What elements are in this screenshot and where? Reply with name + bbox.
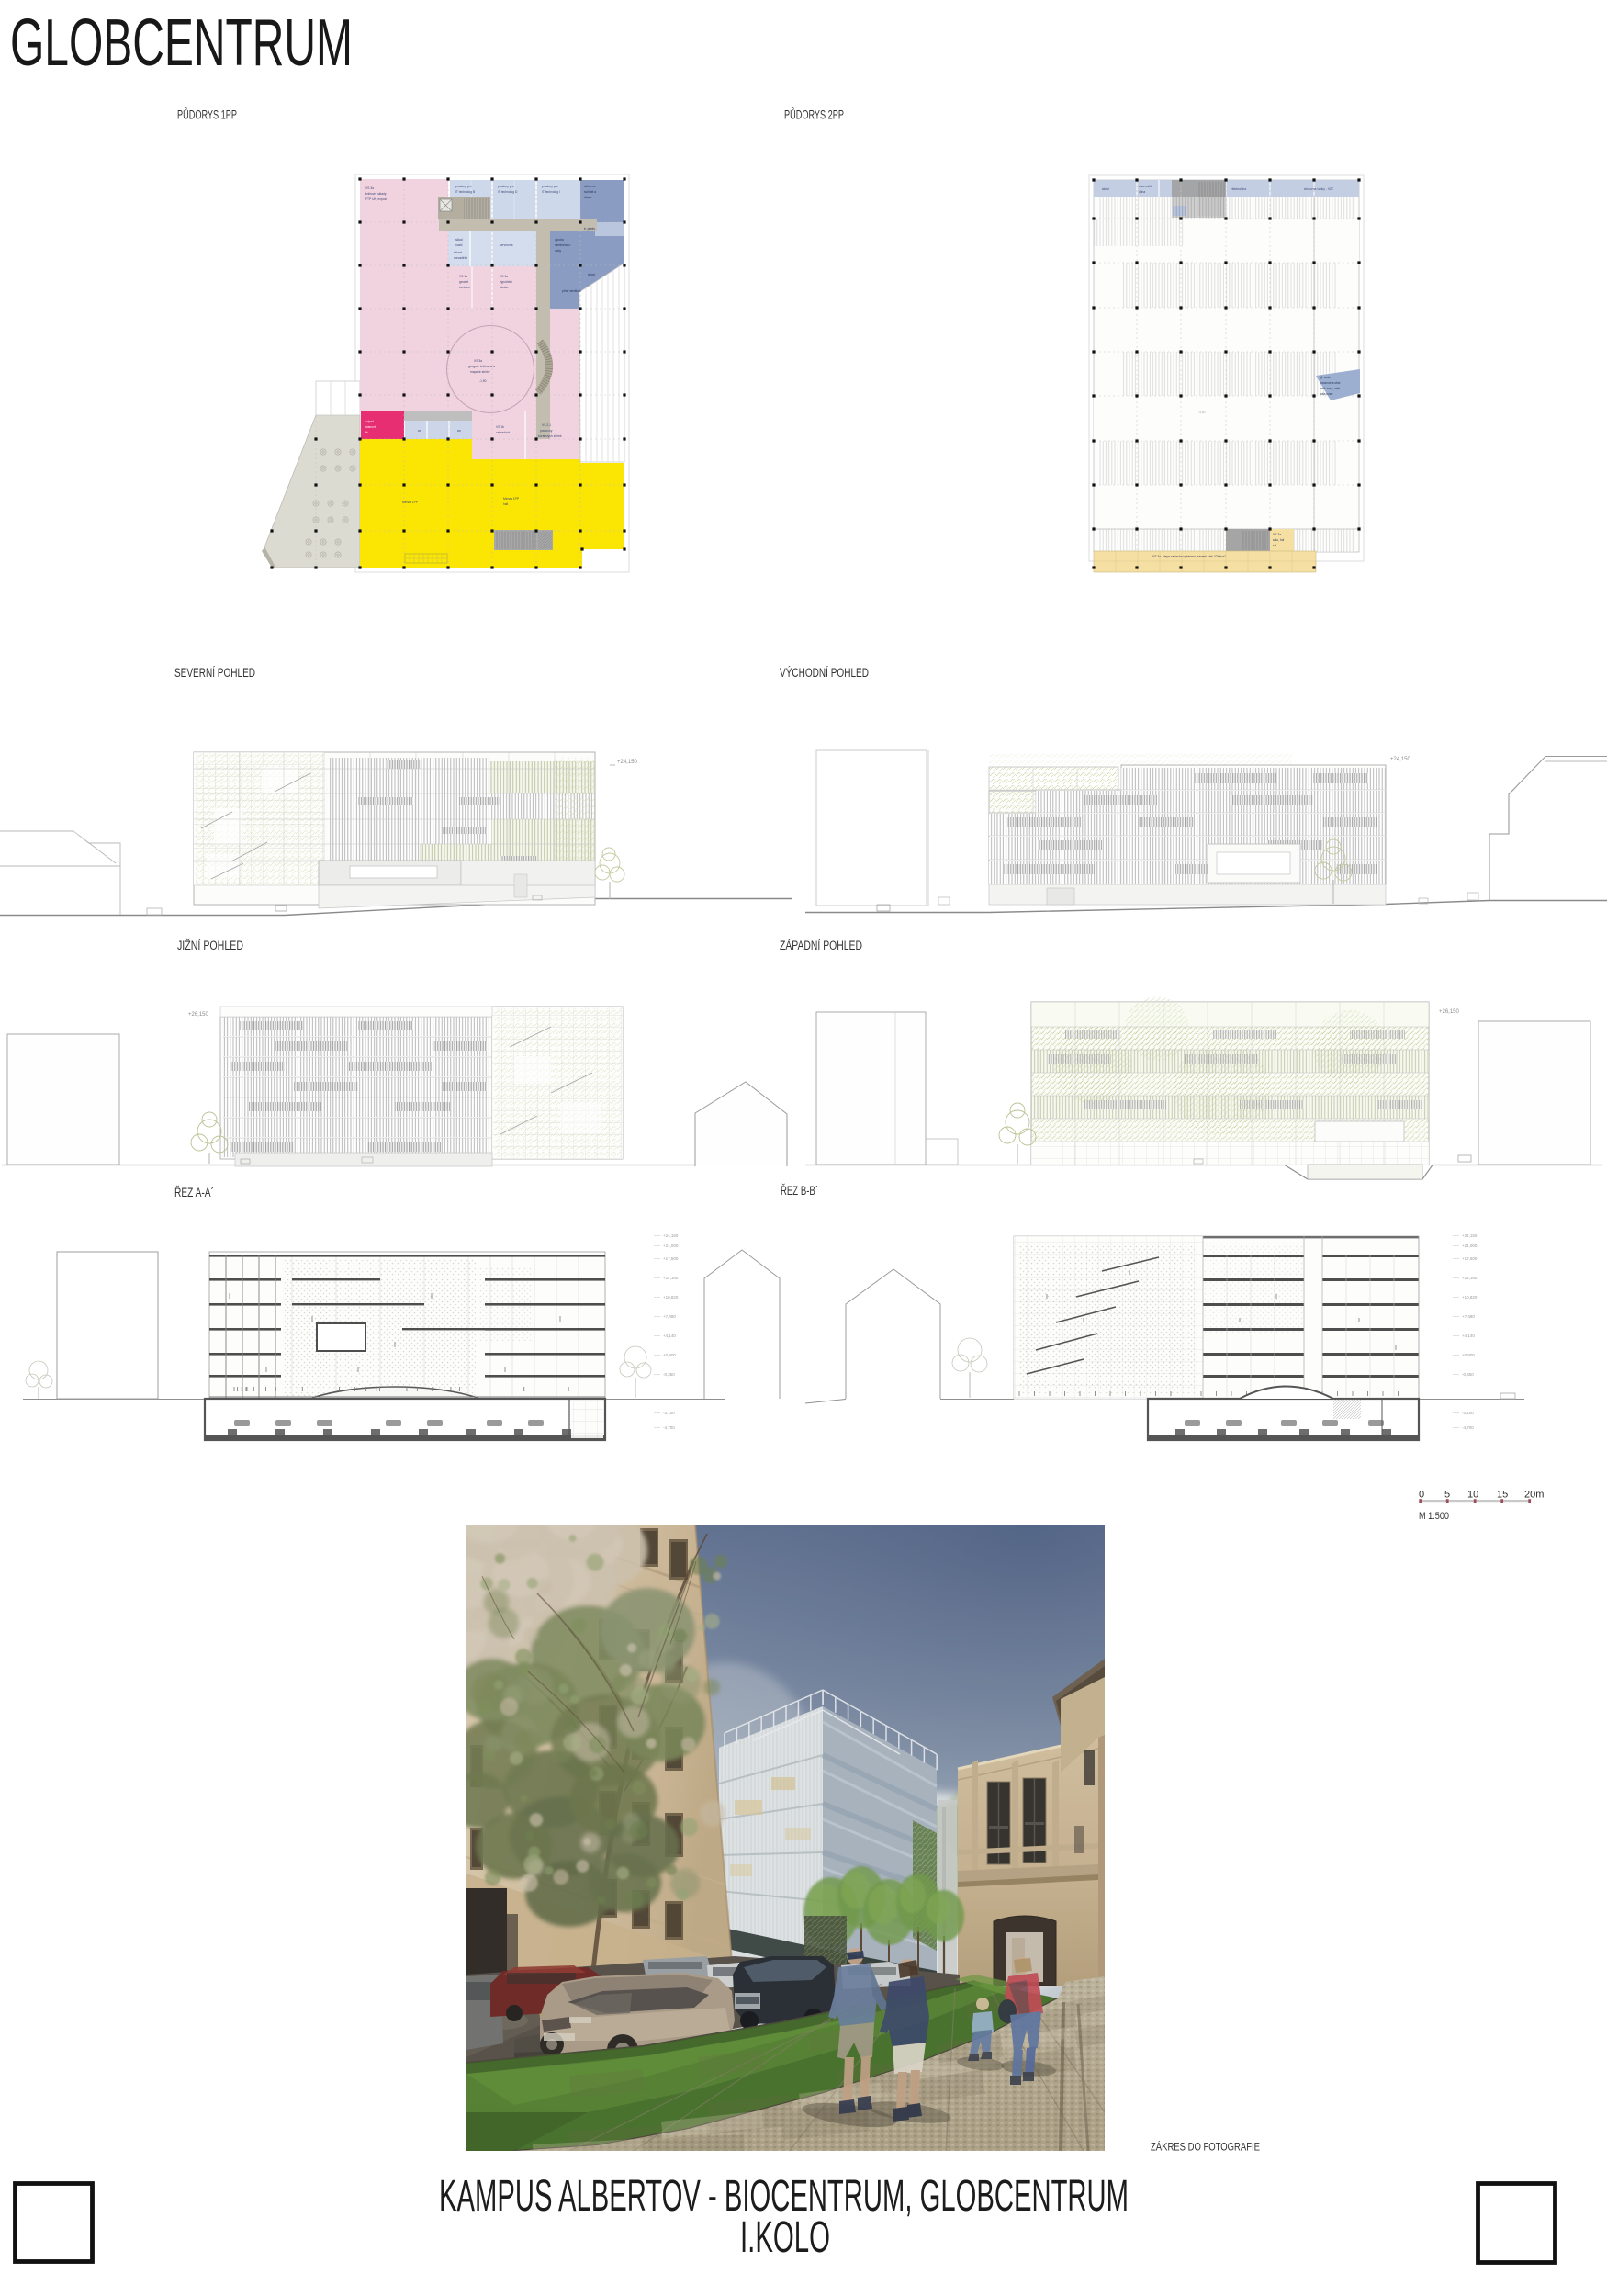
- svg-text:-1,90: -1,90: [479, 379, 487, 383]
- svg-text:ŘEZ B-B´: ŘEZ B-B´: [781, 1184, 818, 1198]
- svg-text:-3,100: -3,100: [1462, 1411, 1474, 1415]
- svg-text:prostory pro: prostory pro: [498, 185, 514, 188]
- svg-text:sál: sál: [1273, 544, 1276, 547]
- svg-text:svítidel a: svítidel a: [584, 190, 596, 194]
- svg-text:+21,000: +21,000: [1462, 1244, 1478, 1248]
- svg-text:+0,800: +0,800: [1462, 1353, 1475, 1357]
- svg-text:+14,160: +14,160: [663, 1276, 679, 1280]
- svg-text:servrovna: servrovna: [500, 243, 513, 247]
- svg-text:+4,140: +4,140: [1462, 1334, 1475, 1338]
- svg-text:M 1:500: M 1:500: [1419, 1511, 1449, 1522]
- svg-text:elektrodílna: elektrodílna: [1231, 187, 1246, 191]
- svg-text:+4,140: +4,140: [663, 1334, 676, 1338]
- svg-text:wc: wc: [418, 429, 421, 433]
- svg-text:+7,480: +7,480: [663, 1314, 676, 1319]
- svg-text:nosič: nosič: [455, 243, 463, 247]
- svg-text:vjf: auto: vjf: auto: [1320, 376, 1331, 379]
- svg-text:IT technolog I: IT technolog I: [542, 190, 560, 194]
- svg-text:prostory pro: prostory pro: [542, 185, 558, 188]
- svg-text:+10,820: +10,820: [663, 1295, 679, 1300]
- svg-text:VS 3a: VS 3a: [474, 359, 482, 363]
- svg-text:sklad: sklad: [1102, 187, 1109, 191]
- svg-text:síťové: síťové: [454, 251, 462, 254]
- svg-text:tě: tě: [365, 431, 368, 434]
- svg-text:mapové sbírky: mapové sbírky: [470, 370, 490, 374]
- svg-text:VS 3a: VS 3a: [365, 186, 374, 190]
- svg-text:PŮDORYS 2PP: PŮDORYS 2PP: [784, 108, 844, 122]
- svg-text:5: 5: [1444, 1490, 1450, 1501]
- svg-text:VS 2a: VS 2a: [1273, 533, 1281, 536]
- svg-text:ZÁPADNÍ POHLED: ZÁPADNÍ POHLED: [780, 939, 862, 952]
- svg-text:dílna: dílna: [1139, 190, 1145, 194]
- svg-text:rozvaděče: rozvaděče: [454, 256, 467, 260]
- svg-text:+24,150: +24,150: [1390, 757, 1411, 762]
- svg-text:-3,100: -3,100: [663, 1411, 675, 1415]
- svg-text:geodet: geodet: [459, 280, 468, 284]
- svg-text:VÝCHODNÍ POHLED: VÝCHODNÍ POHLED: [780, 666, 869, 680]
- svg-text:zahradníci: zahradníci: [496, 431, 510, 434]
- svg-text:-4,700: -4,700: [663, 1425, 675, 1430]
- svg-text:ŘEZ A-A´: ŘEZ A-A´: [174, 1186, 214, 1199]
- svg-text:-0,350: -0,350: [663, 1372, 675, 1377]
- svg-text:auta vozů: auta vozů: [1320, 392, 1332, 396]
- svg-text:výroba: výroba: [555, 238, 564, 242]
- svg-text:-4,90: -4,90: [1198, 411, 1206, 414]
- svg-text:15: 15: [1497, 1490, 1508, 1501]
- svg-text:cluster: cluster: [500, 286, 510, 289]
- svg-text:přístř sterilizát: přístř sterilizát: [562, 289, 581, 293]
- svg-text:pracovny: pracovny: [540, 429, 553, 433]
- svg-text:JIŽNÍ POHLED: JIŽNÍ POHLED: [177, 939, 243, 952]
- svg-text:+0,800: +0,800: [663, 1353, 676, 1357]
- svg-text:knihovní sklady: knihovní sklady: [365, 192, 387, 196]
- svg-text:-0,350: -0,350: [1462, 1372, 1474, 1377]
- svg-text:stanoviš: stanoviš: [365, 425, 376, 429]
- svg-text:+21,000: +21,000: [663, 1244, 679, 1248]
- svg-text:strojovna vzduy - VZT: strojovna vzduy - VZT: [1304, 187, 1333, 191]
- svg-text:+24,150: +24,150: [1462, 1233, 1478, 1238]
- svg-text:+14,160: +14,160: [1462, 1276, 1478, 1280]
- svg-text:IT technolog D: IT technolog D: [498, 190, 518, 194]
- svg-text:odpad: odpad: [365, 420, 374, 423]
- svg-text:I.KOLO: I.KOLO: [740, 2213, 830, 2262]
- svg-text:PŮDORYS 1PP: PŮDORYS 1PP: [177, 108, 237, 122]
- svg-text:VS 2,1: VS 2,1: [542, 423, 551, 427]
- svg-text:+26,150: +26,150: [188, 1012, 209, 1018]
- svg-text:GLOBCENTRUM: GLOBCENTRUM: [10, 6, 353, 80]
- svg-text:SEVERNÍ POHLED: SEVERNÍ POHLED: [174, 666, 255, 680]
- svg-text:VS 2a - depo se techn vybavení: VS 2a - depo se techn vybavení, zázemí s…: [1152, 555, 1227, 558]
- svg-text:korálových zbírek: korálových zbírek: [538, 434, 562, 438]
- svg-text:ZÁKRES DO FOTOGRAFIE: ZÁKRES DO FOTOGRAFIE: [1151, 2142, 1260, 2154]
- svg-text:zázemí/díl: zázemí/díl: [1139, 185, 1152, 188]
- svg-text:Menza 1PP: Menza 1PP: [402, 501, 419, 504]
- svg-text:+17,500: +17,500: [663, 1256, 679, 1261]
- svg-text:citace: citace: [584, 196, 592, 199]
- svg-text:prostory pro: prostory pro: [455, 185, 472, 188]
- svg-text:+7,480: +7,480: [1462, 1314, 1475, 1319]
- svg-text:IT technolog B: IT technolog B: [455, 190, 476, 194]
- svg-text:sálu, hol: sálu, hol: [1273, 538, 1285, 542]
- svg-text:b. předs: b. předs: [584, 227, 595, 231]
- svg-text:demineraliz.: demineraliz.: [555, 243, 571, 247]
- svg-text:20m: 20m: [1524, 1490, 1544, 1501]
- svg-text:-4,700: -4,700: [1462, 1425, 1474, 1430]
- svg-text:geograf. knihovna a: geograf. knihovna a: [468, 365, 495, 368]
- svg-text:0: 0: [1419, 1490, 1424, 1501]
- svg-text:sklad: sklad: [588, 273, 595, 276]
- svg-text:+10,820: +10,820: [1462, 1295, 1478, 1300]
- svg-text:hall: hall: [503, 502, 508, 506]
- svg-text:+17,500: +17,500: [1462, 1256, 1478, 1261]
- svg-text:vody: vody: [555, 249, 561, 253]
- svg-text:centrum: centrum: [459, 286, 470, 289]
- svg-text:sklad: sklad: [455, 238, 463, 242]
- svg-text:VS 1a: VS 1a: [459, 275, 467, 278]
- svg-text:10: 10: [1467, 1490, 1478, 1501]
- svg-text:únosnое a obsl: únosnое a obsl: [1320, 381, 1341, 385]
- svg-text:wc: wc: [457, 429, 461, 433]
- svg-text:FTP UK, expozí: FTP UK, expozí: [365, 197, 387, 201]
- svg-text:Menza 1PP: Menza 1PP: [503, 497, 520, 501]
- svg-text:VS 1b: VS 1b: [496, 425, 504, 429]
- svg-text:+26,150: +26,150: [1439, 1009, 1460, 1015]
- svg-text:řadě vozy, násl: řadě vozy, násl: [1320, 387, 1340, 390]
- svg-text:výpočetní: výpočetní: [500, 280, 512, 284]
- svg-text:střešeno: střešeno: [584, 185, 596, 188]
- svg-text:+24,150: +24,150: [663, 1233, 679, 1238]
- svg-text:VS 1a: VS 1a: [500, 275, 508, 278]
- svg-text:+24,150: +24,150: [617, 760, 638, 765]
